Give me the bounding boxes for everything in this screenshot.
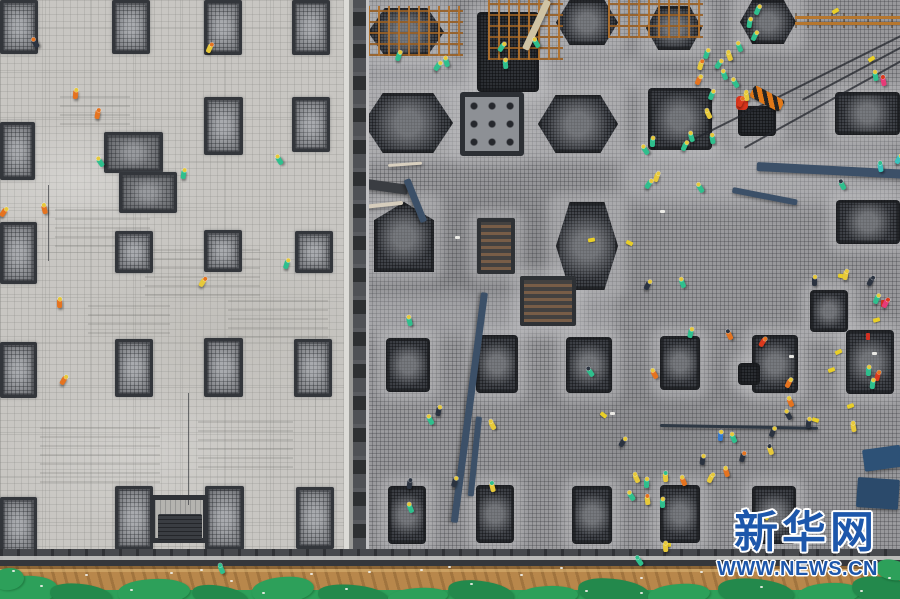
foundation-pad-cluster: [119, 172, 177, 213]
foundation-pad: [0, 342, 37, 398]
foundation-pad: [295, 231, 333, 273]
steel-beam: [856, 477, 900, 510]
foundation-pad: [648, 88, 712, 150]
foundation-pad: [0, 222, 37, 284]
debris-bit: [12, 570, 15, 572]
worker-helmet: [876, 293, 881, 298]
debris-white: [660, 210, 665, 213]
worker: [663, 543, 669, 552]
foundation-pad: [566, 337, 612, 393]
worker: [870, 380, 876, 389]
worker: [866, 367, 871, 376]
worker-helmet: [74, 88, 78, 92]
foundation-pad: [112, 0, 150, 54]
foundation-pad: [204, 230, 242, 272]
worker-helmet: [689, 327, 694, 332]
debris-bit: [640, 577, 643, 579]
debris-bit: [640, 592, 643, 594]
debris-bit: [560, 567, 563, 569]
debris-bit: [420, 569, 423, 571]
xinhua-logo-text: 新华网: [717, 510, 878, 556]
foundation-pad: [115, 339, 153, 397]
worker-helmet: [660, 497, 664, 501]
foundation-pad: [835, 92, 900, 135]
worker-helmet: [741, 451, 746, 456]
worker-helmet: [655, 171, 660, 176]
worker: [806, 419, 812, 428]
worker-helmet: [813, 275, 817, 279]
debris-bit: [85, 574, 88, 576]
foundation-pad: [476, 335, 518, 393]
worker-helmet: [503, 58, 507, 62]
worker: [644, 496, 650, 506]
worker-helmet: [844, 269, 849, 274]
worker: [660, 499, 665, 508]
chalk-marking: [40, 425, 160, 483]
rebar-rail: [795, 13, 900, 28]
foundation-pad: [476, 485, 514, 543]
worker-helmet: [701, 454, 705, 458]
foundation-pad: [810, 290, 848, 332]
worker-helmet: [744, 90, 749, 95]
foundation-pad: [572, 486, 612, 544]
worker: [644, 479, 649, 488]
worker: [73, 90, 79, 99]
worker-helmet: [688, 131, 693, 136]
foundation-pad: [660, 336, 700, 390]
debris-bit: [860, 590, 863, 592]
foundation-pad: [296, 487, 334, 549]
debris-white: [872, 352, 877, 355]
worker-helmet: [397, 50, 402, 55]
worker-helmet: [408, 478, 412, 482]
debris-white: [455, 236, 460, 239]
worker-helmet: [740, 96, 745, 101]
worker-helmet: [719, 430, 723, 434]
xinhua-watermark: 新华网 WWW.NEWS.CN: [717, 510, 878, 581]
worker-helmet: [772, 426, 777, 431]
worker-helmet: [585, 366, 591, 372]
debris-white: [789, 355, 794, 358]
worker-helmet: [678, 277, 683, 282]
worker-helmet: [645, 477, 649, 481]
foundation-pad: [0, 497, 37, 555]
chalk-marking: [198, 418, 293, 468]
debris-bit: [520, 574, 523, 576]
worker-helmet: [698, 74, 703, 79]
worker-helmet: [57, 297, 61, 301]
worker-helmet: [807, 417, 811, 421]
worker-helmet: [443, 56, 448, 61]
survey-wire: [48, 185, 49, 261]
worker: [663, 473, 669, 482]
foundation-pad: [205, 486, 244, 550]
worker-helmet: [720, 69, 725, 74]
construction-site-photo: 新华网 WWW.NEWS.CN: [0, 0, 900, 599]
foundation-pad: [520, 276, 576, 326]
worker-helmet: [757, 4, 762, 9]
debris-bit: [200, 569, 203, 571]
worker-helmet: [651, 136, 655, 140]
foundation-pad: [115, 231, 153, 273]
debris-bit: [230, 580, 233, 582]
foundation-pad: [388, 486, 426, 544]
foundation-pad: [386, 338, 430, 392]
foundation-pad: [460, 92, 524, 156]
expansion-joint-divider: [344, 0, 370, 570]
foundation-pad: [738, 363, 760, 385]
worker: [407, 480, 413, 489]
worker-helmet: [699, 59, 704, 64]
worker-helmet: [880, 75, 885, 80]
worker: [718, 432, 723, 441]
debris-bit: [700, 571, 703, 573]
debris-bit: [310, 573, 313, 575]
debris-white: [610, 412, 615, 415]
worker-helmet: [867, 365, 871, 369]
foundation-pad: [115, 486, 153, 550]
worker-helmet: [406, 315, 411, 320]
worker-helmet: [640, 144, 646, 150]
debris-bit: [170, 572, 173, 574]
worker: [812, 277, 817, 286]
debris-bit: [585, 590, 588, 592]
worker-helmet: [850, 421, 855, 426]
debris-bit: [345, 588, 348, 590]
worker-helmet: [748, 17, 753, 22]
debris-bit: [470, 583, 473, 585]
worker-helmet: [663, 541, 667, 545]
worker-helmet: [766, 444, 771, 449]
red-flag: [866, 333, 870, 340]
worker-helmet: [645, 494, 650, 499]
worker-helmet: [663, 471, 667, 475]
worker-helmet: [96, 108, 101, 113]
xinhua-url-text: WWW.NEWS.CN: [717, 558, 878, 581]
foundation-pad: [477, 218, 515, 274]
foundation-pad: [292, 97, 330, 152]
debris-bit: [760, 586, 763, 588]
foundation-pad: [294, 339, 332, 397]
foundation-pad: [204, 338, 243, 397]
worker-helmet: [709, 133, 714, 138]
chalk-marking: [228, 298, 328, 338]
debris-bit: [448, 566, 451, 568]
worker-helmet: [710, 89, 715, 94]
worker-helmet: [872, 70, 877, 75]
foundation-pad: [660, 485, 700, 543]
worker-helmet: [754, 30, 759, 35]
worker-helmet: [876, 370, 881, 375]
worker-helmet: [626, 490, 632, 496]
foundation-pad: [0, 122, 35, 180]
debris-bit: [888, 577, 891, 579]
chalk-marking: [88, 298, 170, 334]
worker-helmet: [871, 378, 875, 382]
debris-bit: [130, 589, 133, 591]
foundation-pad: [0, 0, 38, 54]
chalk-marking: [145, 248, 260, 296]
worker-helmet: [723, 466, 728, 471]
worker-helmet: [725, 50, 730, 55]
worker-helmet: [437, 405, 442, 410]
debris-bit: [262, 592, 265, 594]
worker-helmet: [877, 161, 882, 166]
worker-helmet: [182, 168, 187, 173]
worker-helmet: [684, 140, 689, 145]
rebar-scaffold: [368, 6, 463, 56]
worker-helmet: [41, 203, 46, 208]
worker-helmet: [489, 481, 494, 486]
joint-edge-line: [366, 0, 369, 570]
worker: [503, 60, 509, 69]
survey-wire: [188, 393, 189, 505]
foundation-pad: [204, 97, 243, 155]
worker: [57, 299, 62, 308]
debris-bit: [40, 585, 43, 587]
worker-helmet: [209, 42, 214, 47]
worker-helmet: [285, 258, 290, 263]
worker-helmet: [705, 48, 710, 53]
worker: [650, 138, 655, 147]
debris-bit: [368, 571, 371, 573]
foundation-pad-cluster: [104, 132, 163, 173]
worker-helmet: [634, 555, 640, 561]
rebar-scaffold: [608, 0, 703, 38]
joint-dark-gap: [353, 0, 366, 570]
center-pit-inner: [158, 514, 202, 540]
foundation-pad: [836, 200, 900, 244]
worker-helmet: [95, 156, 101, 162]
foundation-pad: [292, 0, 330, 55]
worker-helmet: [453, 476, 458, 481]
